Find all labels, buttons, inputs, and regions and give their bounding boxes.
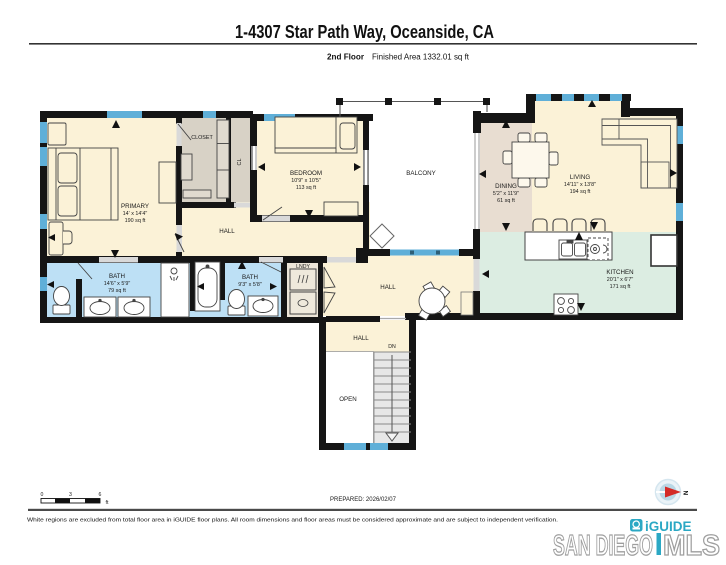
svg-text:79 sq ft: 79 sq ft: [108, 288, 126, 294]
svg-text:HALL: HALL: [380, 284, 396, 291]
svg-text:MLS: MLS: [663, 530, 720, 560]
svg-text:BALCONY: BALCONY: [406, 170, 436, 177]
svg-text:CLOSET: CLOSET: [191, 135, 213, 141]
svg-text:SAN DIEGO: SAN DIEGO: [553, 530, 653, 560]
svg-text:5'2" x 11'9": 5'2" x 11'9": [493, 191, 519, 197]
svg-text:113 sq ft: 113 sq ft: [296, 185, 317, 191]
svg-text:3: 3: [69, 492, 72, 498]
svg-text:N: N: [682, 491, 689, 496]
svg-text:194 sq ft: 194 sq ft: [570, 189, 591, 195]
svg-text:HALL: HALL: [219, 228, 235, 235]
svg-text:OPEN: OPEN: [339, 396, 357, 403]
svg-text:LNDY: LNDY: [296, 264, 310, 270]
svg-text:CL: CL: [237, 159, 243, 166]
svg-text:PREPARED: 2026/02/07: PREPARED: 2026/02/07: [330, 497, 397, 503]
svg-text:BEDROOM: BEDROOM: [290, 170, 322, 177]
svg-text:6: 6: [99, 492, 102, 498]
svg-text:DN: DN: [388, 344, 396, 350]
svg-text:171 sq ft: 171 sq ft: [610, 284, 631, 290]
svg-text:61 sq ft: 61 sq ft: [497, 198, 515, 204]
svg-text:9'3" x 5'8": 9'3" x 5'8": [238, 282, 262, 288]
svg-text:190 sq ft: 190 sq ft: [125, 218, 146, 224]
svg-text:14'6" x 5'9": 14'6" x 5'9": [104, 281, 131, 287]
svg-text:BATH: BATH: [242, 274, 258, 281]
svg-text:2nd Floor: 2nd Floor: [327, 53, 364, 62]
svg-text:KITCHEN: KITCHEN: [606, 269, 633, 276]
svg-text:10'9" x 10'5": 10'9" x 10'5": [291, 178, 321, 184]
svg-text:1-4307 Star Path Way, Oceansid: 1-4307 Star Path Way, Oceanside, CA: [235, 22, 494, 42]
svg-text:0: 0: [41, 492, 44, 498]
svg-text:Finished Area 1332.01 sq ft: Finished Area 1332.01 sq ft: [372, 53, 470, 62]
svg-text:LIVING: LIVING: [570, 174, 590, 181]
svg-text:20'1" x 6'7": 20'1" x 6'7": [607, 277, 634, 283]
svg-text:White regions are excluded fro: White regions are excluded from total fl…: [27, 518, 558, 524]
svg-text:PRIMARY: PRIMARY: [121, 203, 149, 210]
svg-text:DINING: DINING: [495, 183, 517, 190]
svg-text:HALL: HALL: [353, 335, 369, 342]
svg-text:14' x 14'4": 14' x 14'4": [123, 211, 148, 217]
svg-text:BATH: BATH: [109, 273, 125, 280]
svg-text:14'11" x 13'8": 14'11" x 13'8": [564, 182, 596, 188]
